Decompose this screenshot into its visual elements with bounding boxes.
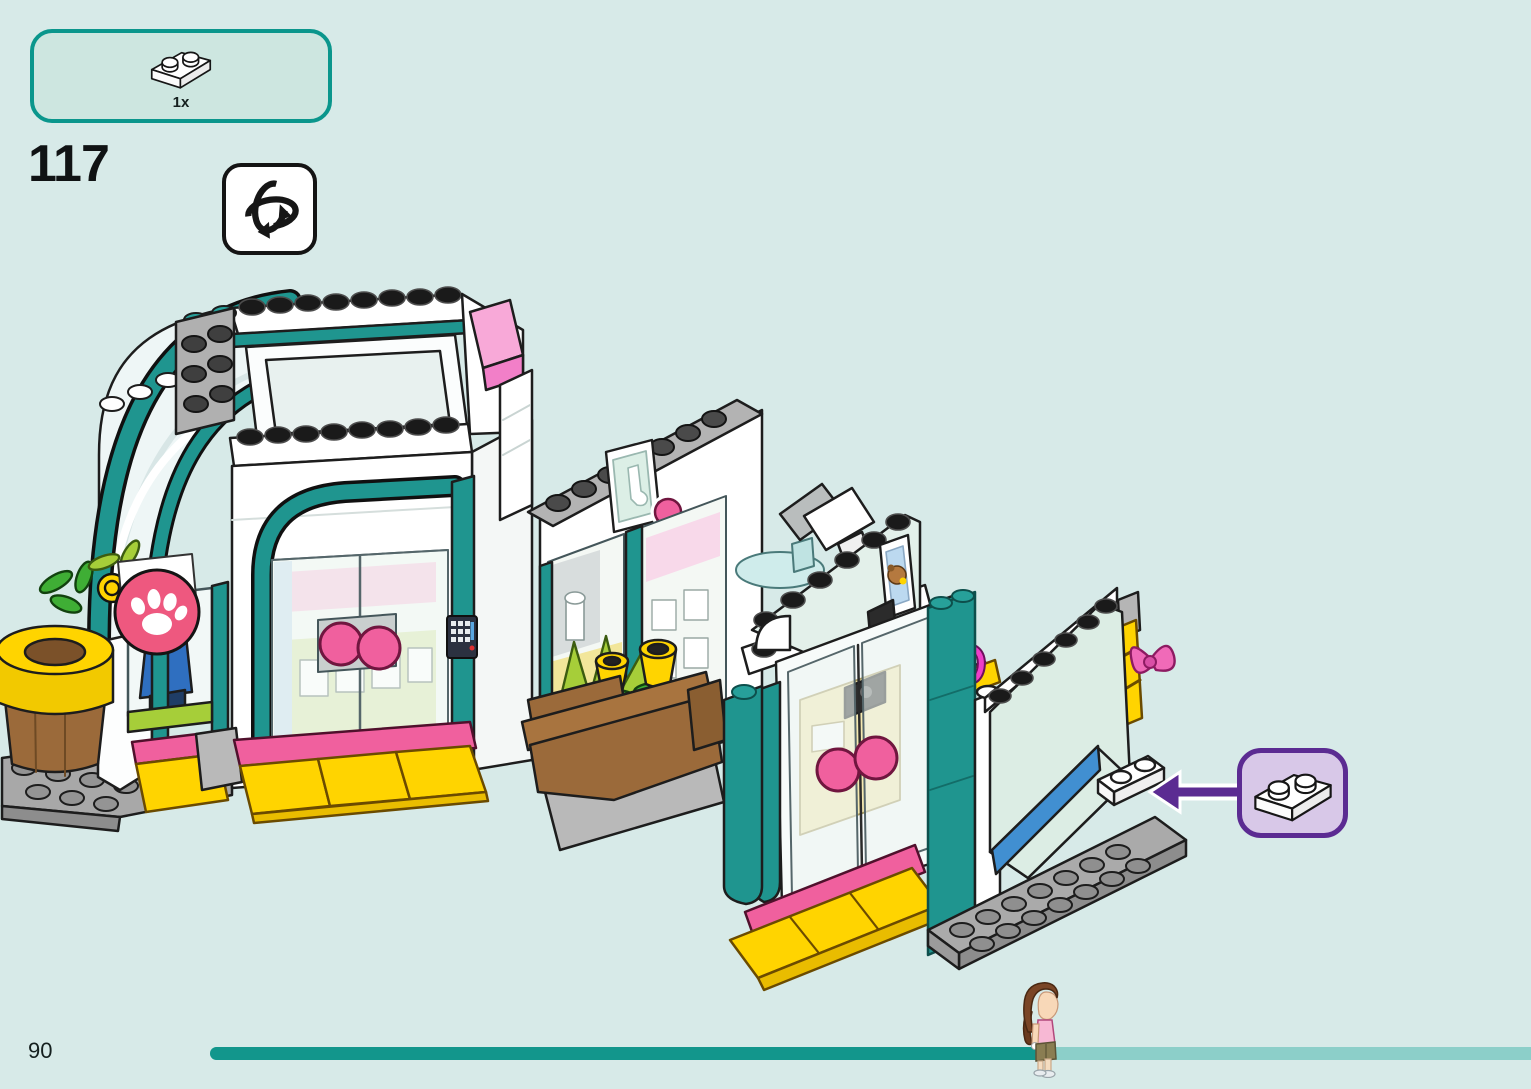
door-handle-right: [358, 627, 400, 669]
right-door-handle-left: [817, 749, 859, 791]
door-handle-left: [320, 623, 362, 665]
entrance-awning: [234, 722, 488, 823]
progress-fill: [210, 1047, 1042, 1060]
end-wall: [985, 588, 1130, 878]
minifigure-progress-marker: [1012, 978, 1068, 1078]
callout-box: [1237, 748, 1348, 838]
instruction-page: 1x 117: [0, 0, 1531, 1089]
round-planter: [0, 626, 113, 776]
callout-plate-1x2-icon: [1247, 760, 1339, 827]
page-number: 90: [28, 1038, 52, 1064]
right-door-handle-right: [855, 737, 897, 779]
gift-bow: [1131, 646, 1175, 673]
door-keypad: [447, 616, 477, 658]
assembly-illustration: [0, 0, 1531, 1089]
progress-track: [210, 1047, 1531, 1060]
left-shop: [0, 287, 532, 831]
paw-print-sign: [115, 554, 199, 654]
callout-arrow: [1146, 766, 1250, 818]
